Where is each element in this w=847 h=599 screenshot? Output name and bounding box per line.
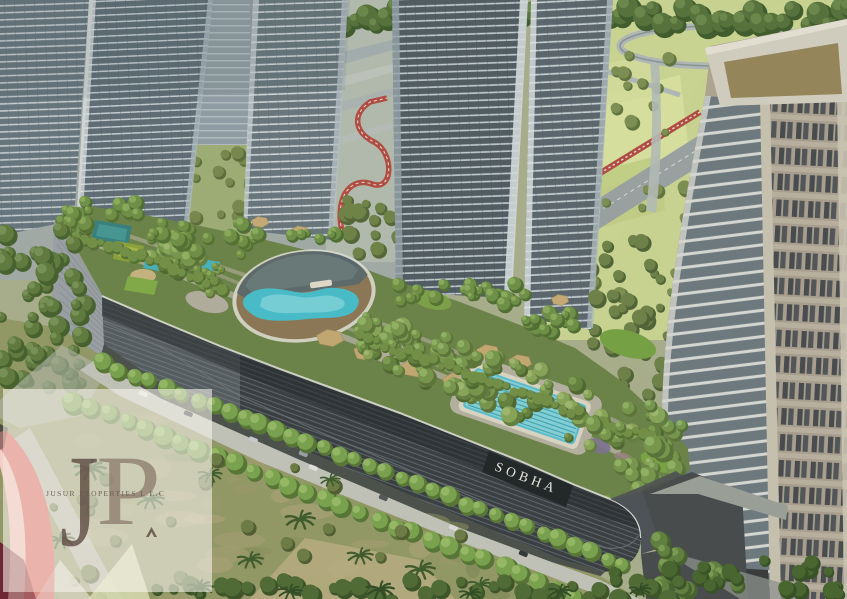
svg-text:JUSUR PROPERTIES L.L.C: JUSUR PROPERTIES L.L.C [46,489,165,498]
svg-text:J: J [60,429,99,574]
